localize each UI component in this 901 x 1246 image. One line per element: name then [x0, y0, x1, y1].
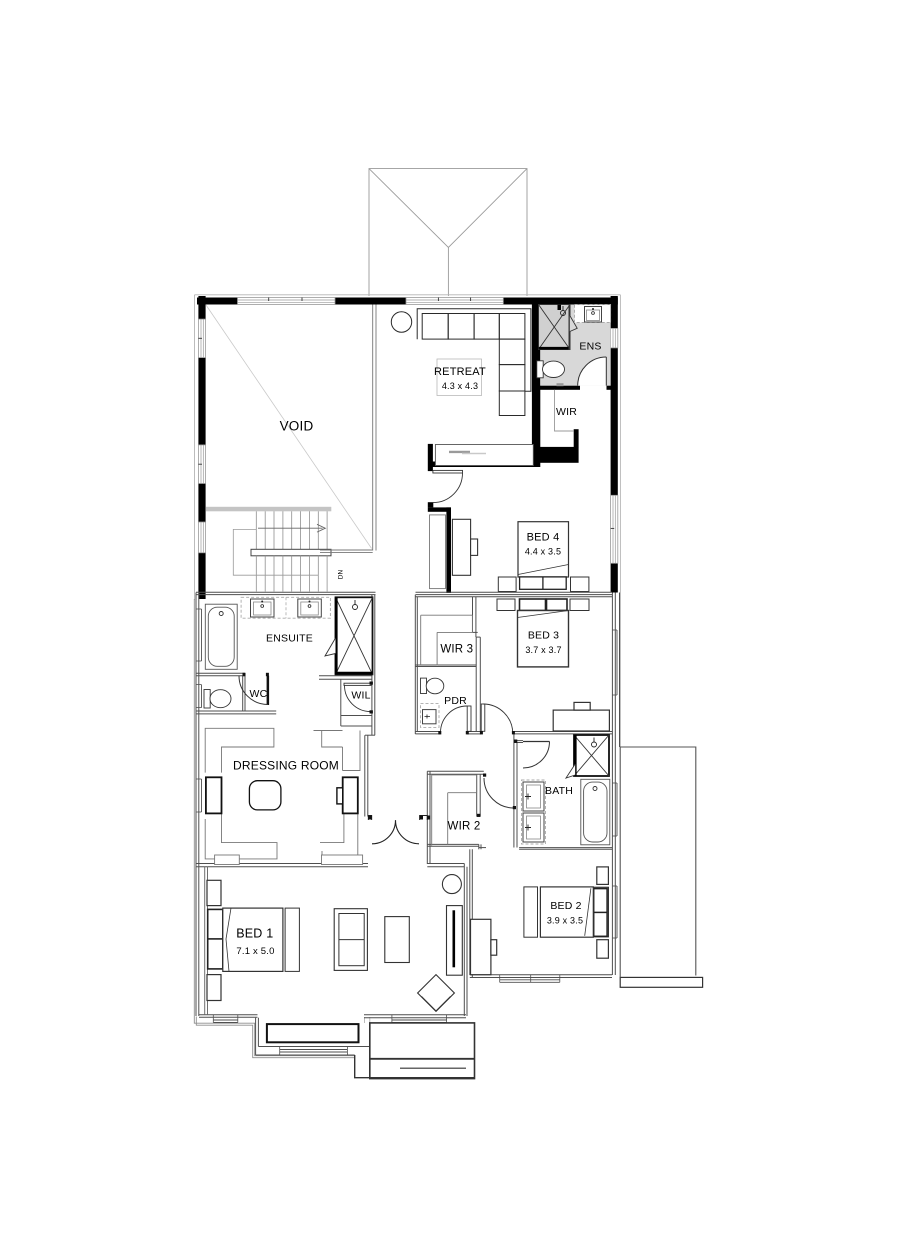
svg-text:RETREAT: RETREAT — [434, 366, 486, 378]
svg-text:DRESSING ROOM: DRESSING ROOM — [233, 759, 339, 773]
svg-text:VOID: VOID — [280, 419, 314, 434]
svg-text:DN: DN — [338, 570, 345, 580]
svg-text:WC: WC — [250, 688, 268, 700]
svg-text:4.3 x 4.3: 4.3 x 4.3 — [442, 381, 478, 391]
svg-text:BED 3: BED 3 — [528, 630, 559, 642]
svg-text:WIL: WIL — [351, 690, 370, 702]
svg-text:ENSUITE: ENSUITE — [266, 633, 313, 645]
svg-text:7.1 x 5.0: 7.1 x 5.0 — [236, 946, 274, 957]
svg-text:BED 1: BED 1 — [236, 927, 273, 941]
svg-text:PDR: PDR — [444, 695, 467, 707]
svg-text:3.7 x 3.7: 3.7 x 3.7 — [525, 645, 561, 655]
svg-text:3.9 x 3.5: 3.9 x 3.5 — [547, 916, 583, 926]
svg-text:WIR 3: WIR 3 — [440, 644, 473, 656]
svg-text:BED 2: BED 2 — [550, 900, 581, 912]
svg-text:WIR: WIR — [556, 406, 577, 418]
svg-text:BATH: BATH — [545, 785, 573, 797]
svg-text:ENS: ENS — [579, 341, 601, 353]
svg-text:BED 4: BED 4 — [527, 532, 560, 544]
svg-text:4.4 x 3.5: 4.4 x 3.5 — [525, 547, 561, 557]
svg-text:WIR 2: WIR 2 — [448, 821, 481, 833]
